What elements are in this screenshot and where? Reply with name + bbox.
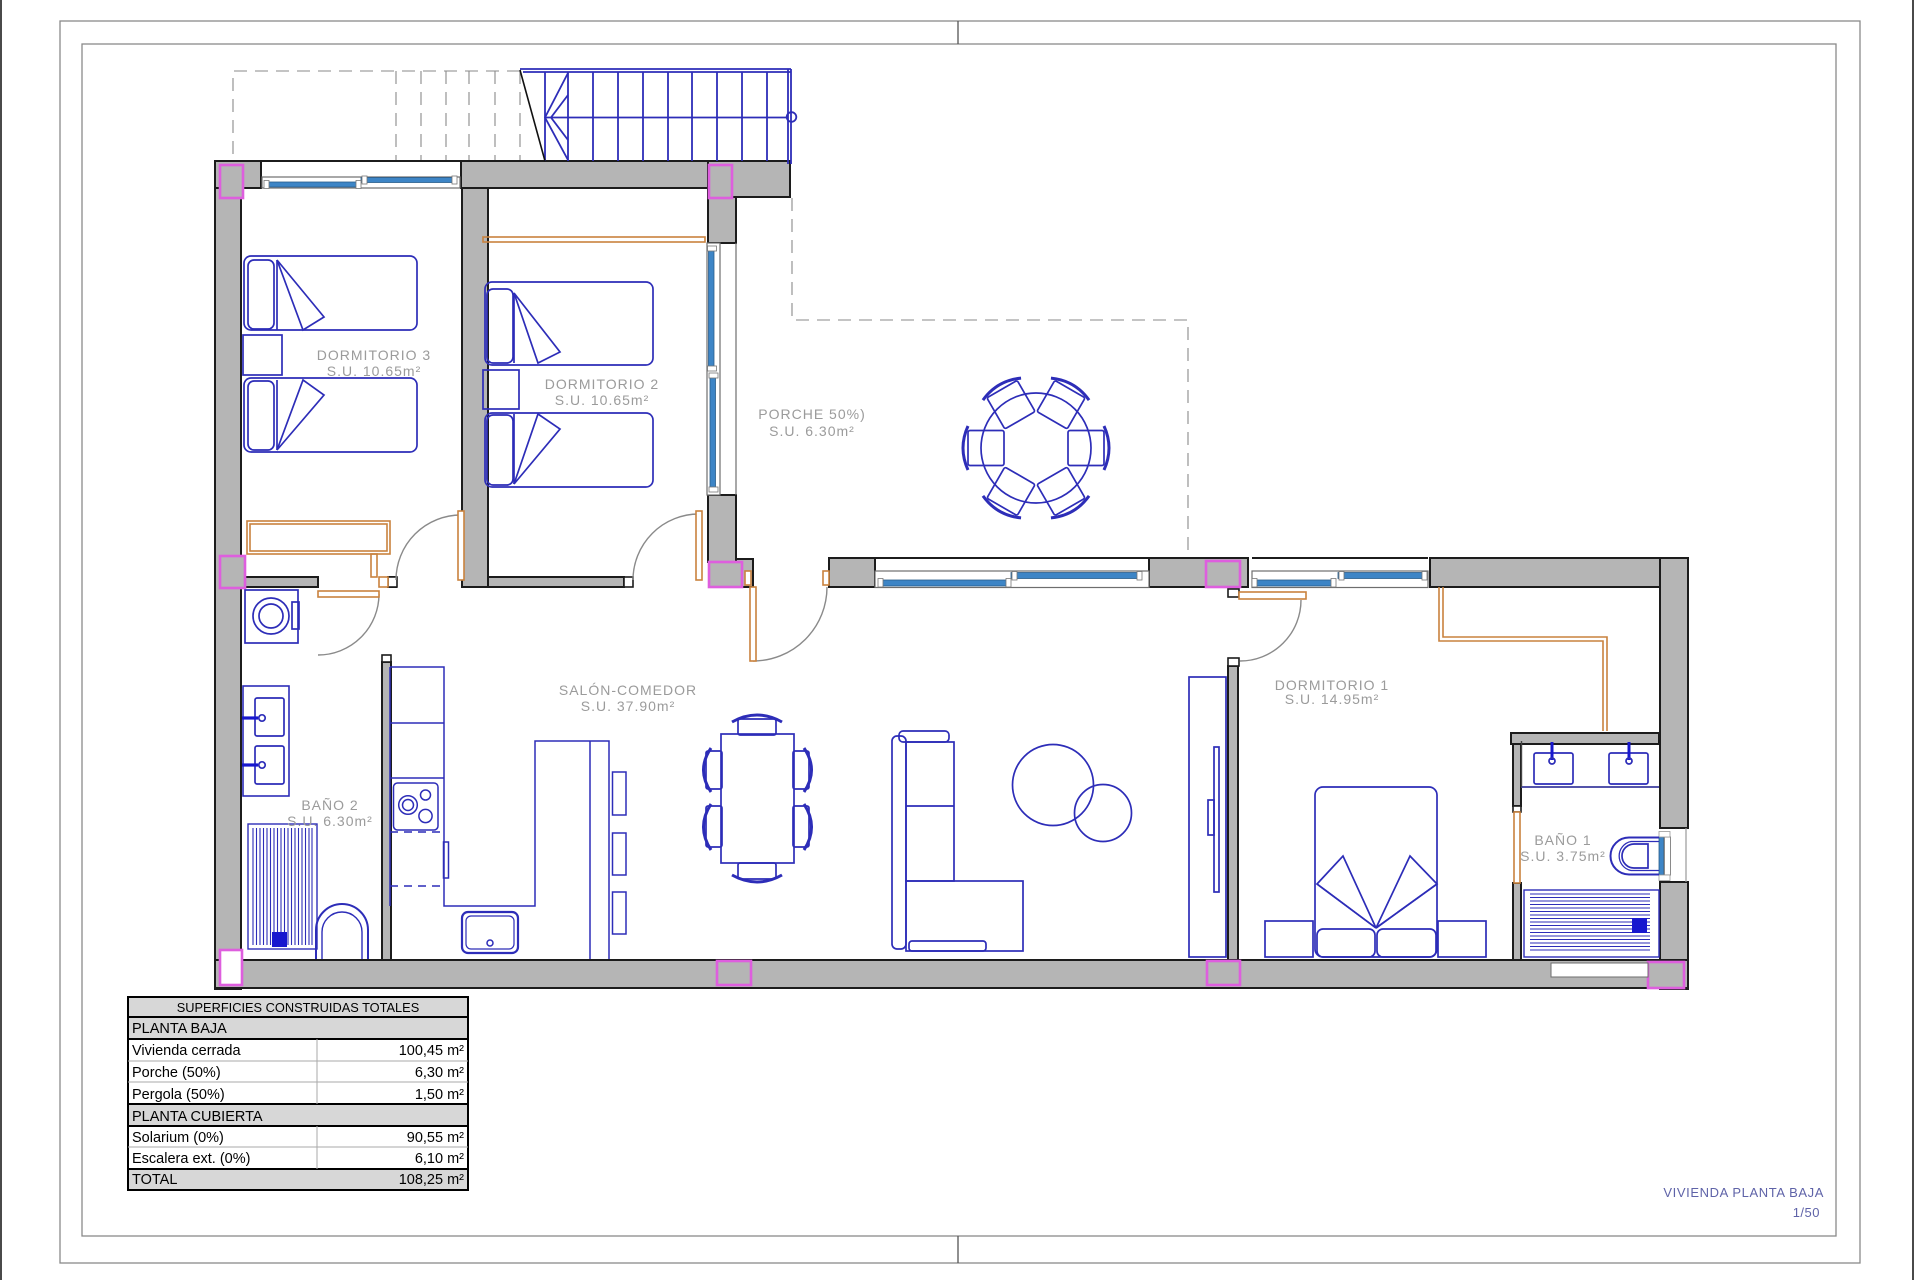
svg-text:S.U. 6.30m²: S.U. 6.30m²: [287, 813, 373, 829]
svg-text:Pergola (50%): Pergola (50%): [132, 1087, 225, 1103]
svg-text:DORMITORIO 3: DORMITORIO 3: [317, 347, 431, 363]
svg-text:Solarium (0%): Solarium (0%): [132, 1130, 224, 1146]
svg-text:PLANTA BAJA: PLANTA BAJA: [132, 1021, 227, 1037]
svg-text:BAÑO 1: BAÑO 1: [1534, 832, 1591, 848]
svg-text:Porche (50%): Porche (50%): [132, 1065, 221, 1081]
svg-text:S.U. 14.95m²: S.U. 14.95m²: [1285, 691, 1379, 707]
svg-text:TOTAL: TOTAL: [132, 1172, 177, 1188]
svg-text:PORCHE 50%): PORCHE 50%): [758, 406, 865, 422]
svg-text:6,10 m²: 6,10 m²: [415, 1151, 464, 1167]
svg-text:SUPERFICIES CONSTRUIDAS TOTALE: SUPERFICIES CONSTRUIDAS TOTALES: [177, 1000, 419, 1015]
svg-text:Escalera ext. (0%): Escalera ext. (0%): [132, 1151, 250, 1167]
svg-text:1/50: 1/50: [1793, 1205, 1820, 1220]
svg-text:S.U. 10.65m²: S.U. 10.65m²: [327, 363, 421, 379]
svg-text:100,45 m²: 100,45 m²: [399, 1043, 464, 1059]
svg-text:SALÓN-COMEDOR: SALÓN-COMEDOR: [559, 682, 697, 698]
svg-text:S.U. 6.30m²: S.U. 6.30m²: [769, 423, 855, 439]
svg-text:S.U. 3.75m²: S.U. 3.75m²: [1520, 848, 1606, 864]
svg-text:VIVIENDA PLANTA BAJA: VIVIENDA PLANTA BAJA: [1663, 1185, 1824, 1200]
svg-text:S.U. 37.90m²: S.U. 37.90m²: [581, 698, 675, 714]
svg-text:BAÑO 2: BAÑO 2: [301, 797, 358, 813]
svg-text:1,50 m²: 1,50 m²: [415, 1087, 464, 1103]
svg-text:S.U. 10.65m²: S.U. 10.65m²: [555, 392, 649, 408]
svg-text:DORMITORIO 2: DORMITORIO 2: [545, 376, 659, 392]
svg-text:90,55 m²: 90,55 m²: [407, 1130, 464, 1146]
svg-text:Vivienda cerrada: Vivienda cerrada: [132, 1043, 241, 1059]
svg-text:PLANTA CUBIERTA: PLANTA CUBIERTA: [132, 1109, 263, 1125]
svg-text:6,30 m²: 6,30 m²: [415, 1065, 464, 1081]
svg-text:108,25 m²: 108,25 m²: [399, 1172, 464, 1188]
